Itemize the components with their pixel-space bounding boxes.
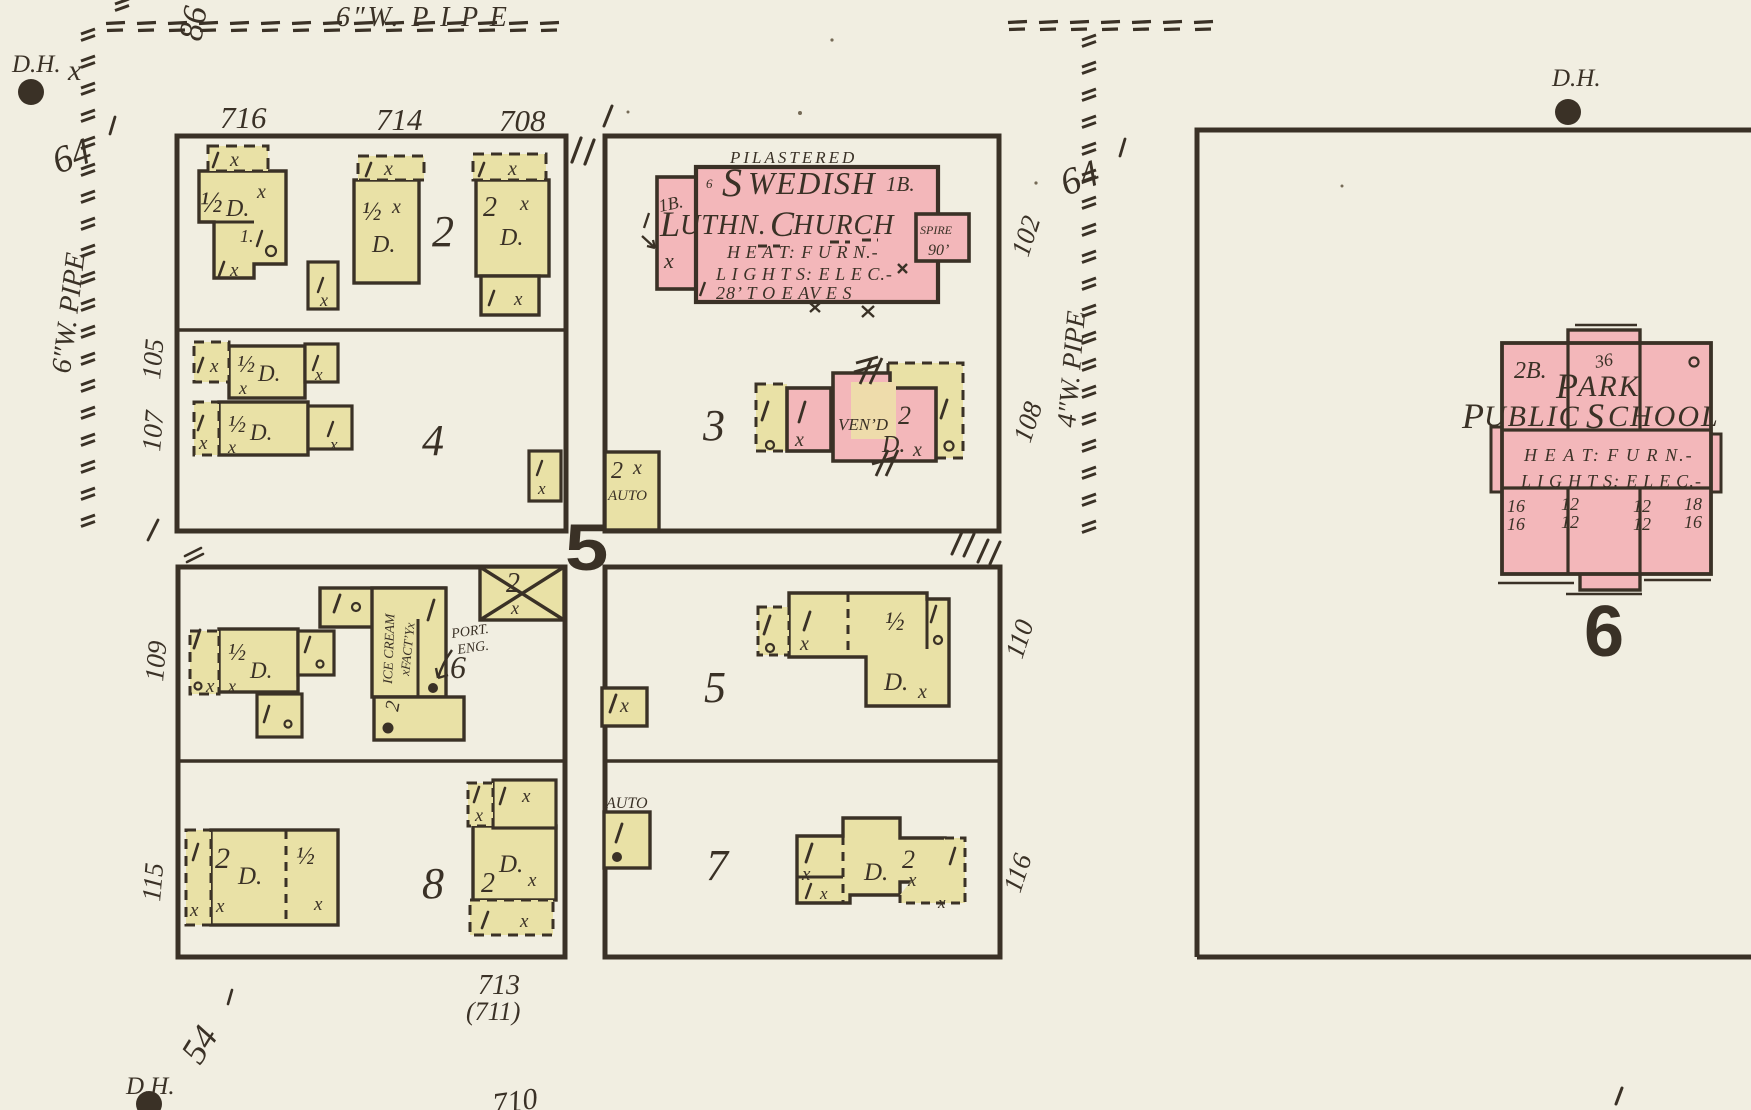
svg-text:L: L: [659, 204, 680, 244]
svg-text:6: 6: [706, 176, 713, 191]
svg-text:½: ½: [885, 607, 905, 636]
svg-text:D.: D.: [499, 225, 523, 251]
svg-text:18: 18: [1684, 494, 1702, 514]
svg-text:x: x: [819, 884, 828, 903]
svg-text:x: x: [67, 54, 82, 87]
svg-text:x: x: [917, 681, 927, 703]
svg-text:x: x: [209, 356, 219, 377]
svg-text:36: 36: [1592, 349, 1614, 372]
svg-text:x: x: [907, 870, 917, 891]
svg-text:6″W. P I P E: 6″W. P I P E: [336, 2, 510, 33]
svg-text:P: P: [1461, 396, 1484, 436]
svg-text:UBLIC: UBLIC: [1484, 400, 1581, 433]
svg-text:x: x: [256, 181, 266, 203]
svg-text:x: x: [205, 676, 215, 697]
svg-text:1B.: 1B.: [886, 172, 915, 196]
svg-text:x: x: [519, 911, 529, 932]
svg-text:C: C: [770, 204, 795, 244]
svg-text:x: x: [619, 695, 629, 717]
svg-text:105: 105: [136, 338, 169, 381]
svg-text:5: 5: [565, 511, 608, 584]
svg-text:5: 5: [704, 663, 726, 712]
svg-text:x: x: [319, 290, 328, 310]
svg-text:CHOOL: CHOOL: [1608, 400, 1720, 433]
svg-text:H E A T: F U R N.-: H E A T: F U R N.-: [726, 242, 879, 262]
svg-text:x: x: [227, 676, 236, 696]
svg-text:28’ T O E AV E S: 28’ T O E AV E S: [716, 283, 853, 303]
svg-text:6: 6: [1584, 592, 1624, 672]
svg-text:x: x: [521, 786, 531, 807]
svg-text:D.: D.: [863, 859, 888, 886]
svg-text:716: 716: [220, 100, 267, 135]
svg-text:x: x: [391, 196, 401, 218]
svg-text:2B.: 2B.: [1514, 358, 1547, 384]
svg-text:½: ½: [228, 412, 246, 438]
svg-text:x: x: [799, 633, 809, 655]
svg-text:x: x: [474, 805, 483, 825]
svg-text:107: 107: [136, 408, 170, 452]
svg-text:S: S: [1586, 396, 1604, 436]
svg-text:4: 4: [422, 416, 444, 465]
svg-text:D.: D.: [883, 669, 908, 696]
svg-text:UTHN.: UTHN.: [680, 210, 767, 241]
svg-text:x: x: [801, 864, 811, 885]
svg-text:x: x: [198, 433, 208, 454]
svg-text:HURCH: HURCH: [792, 210, 895, 241]
svg-text:WEDISH: WEDISH: [748, 165, 876, 201]
svg-text:D.H.: D.H.: [11, 51, 61, 78]
svg-text:SPIRE: SPIRE: [920, 223, 953, 237]
svg-text:D.: D.: [498, 851, 523, 878]
svg-text:AUTO: AUTO: [605, 795, 648, 812]
svg-text:2: 2: [611, 458, 623, 484]
svg-text:86: 86: [172, 3, 214, 43]
svg-text:x: x: [313, 894, 323, 915]
svg-text:S: S: [722, 160, 742, 205]
svg-text:90’: 90’: [928, 242, 949, 259]
svg-text:½: ½: [200, 186, 223, 219]
svg-text:x: x: [794, 429, 804, 451]
svg-text:x: x: [329, 435, 338, 454]
svg-text:D.H.: D.H.: [1551, 65, 1601, 92]
svg-text:12: 12: [1561, 512, 1579, 532]
svg-text:2: 2: [481, 868, 495, 899]
svg-text:L I G H T S: E L E C.-: L I G H T S: E L E C.-: [1520, 471, 1702, 491]
svg-text:12: 12: [1561, 494, 1579, 514]
svg-text:x: x: [238, 378, 247, 398]
svg-text:8: 8: [422, 859, 444, 908]
svg-text:x: x: [510, 598, 519, 618]
svg-text:AUTO: AUTO: [607, 488, 647, 504]
svg-text:x: x: [383, 158, 393, 180]
svg-text:x: x: [314, 365, 323, 384]
svg-text:½: ½: [237, 352, 255, 378]
svg-text:16: 16: [1507, 514, 1525, 534]
svg-text:ICE CREAM: ICE CREAM: [380, 613, 397, 685]
svg-text:3: 3: [702, 401, 725, 450]
svg-text:x: x: [227, 437, 236, 457]
svg-text:x: x: [229, 260, 239, 281]
svg-text:x: x: [912, 439, 922, 461]
svg-text:x: x: [189, 900, 199, 921]
svg-text:2: 2: [506, 568, 520, 599]
svg-text:708: 708: [499, 103, 546, 138]
svg-text:D.: D.: [249, 420, 272, 445]
svg-text:16: 16: [1507, 496, 1525, 516]
svg-text:1.: 1.: [240, 226, 254, 246]
svg-text:2: 2: [898, 401, 911, 430]
svg-text:x: x: [215, 896, 225, 917]
svg-text:6: 6: [450, 649, 466, 685]
svg-text:714: 714: [376, 102, 423, 137]
svg-text:7: 7: [706, 841, 730, 890]
svg-text:x: x: [663, 248, 674, 273]
svg-text:D.: D.: [249, 658, 272, 683]
svg-text:12: 12: [1633, 514, 1651, 534]
svg-text:D.: D.: [225, 196, 249, 222]
svg-text:H E A T: F U R N.-: H E A T: F U R N.-: [1523, 445, 1694, 465]
svg-text:12: 12: [1633, 496, 1651, 516]
svg-text:x: x: [537, 479, 546, 498]
svg-text:D.: D.: [237, 863, 262, 890]
svg-text:x: x: [507, 158, 517, 180]
svg-text:L I G H T S: E L E C.-: L I G H T S: E L E C.-: [715, 264, 893, 284]
svg-text:x: x: [632, 457, 642, 479]
svg-text:D.: D.: [257, 361, 280, 386]
svg-text:D.: D.: [371, 232, 395, 258]
svg-text:115: 115: [136, 862, 169, 903]
svg-text:2: 2: [432, 207, 454, 256]
svg-text:x: x: [519, 193, 529, 215]
svg-text:x: x: [229, 149, 239, 171]
svg-text:x: x: [937, 893, 946, 912]
svg-text:109: 109: [139, 639, 172, 682]
svg-text:16: 16: [1684, 512, 1702, 532]
svg-text:2: 2: [215, 842, 230, 875]
svg-text:½: ½: [362, 197, 382, 226]
svg-text:x: x: [527, 870, 537, 891]
svg-text:(711): (711): [466, 997, 520, 1026]
svg-text:2: 2: [483, 192, 497, 223]
svg-text:x: x: [513, 289, 523, 310]
svg-text:½: ½: [296, 843, 315, 870]
svg-text:½: ½: [228, 640, 246, 666]
